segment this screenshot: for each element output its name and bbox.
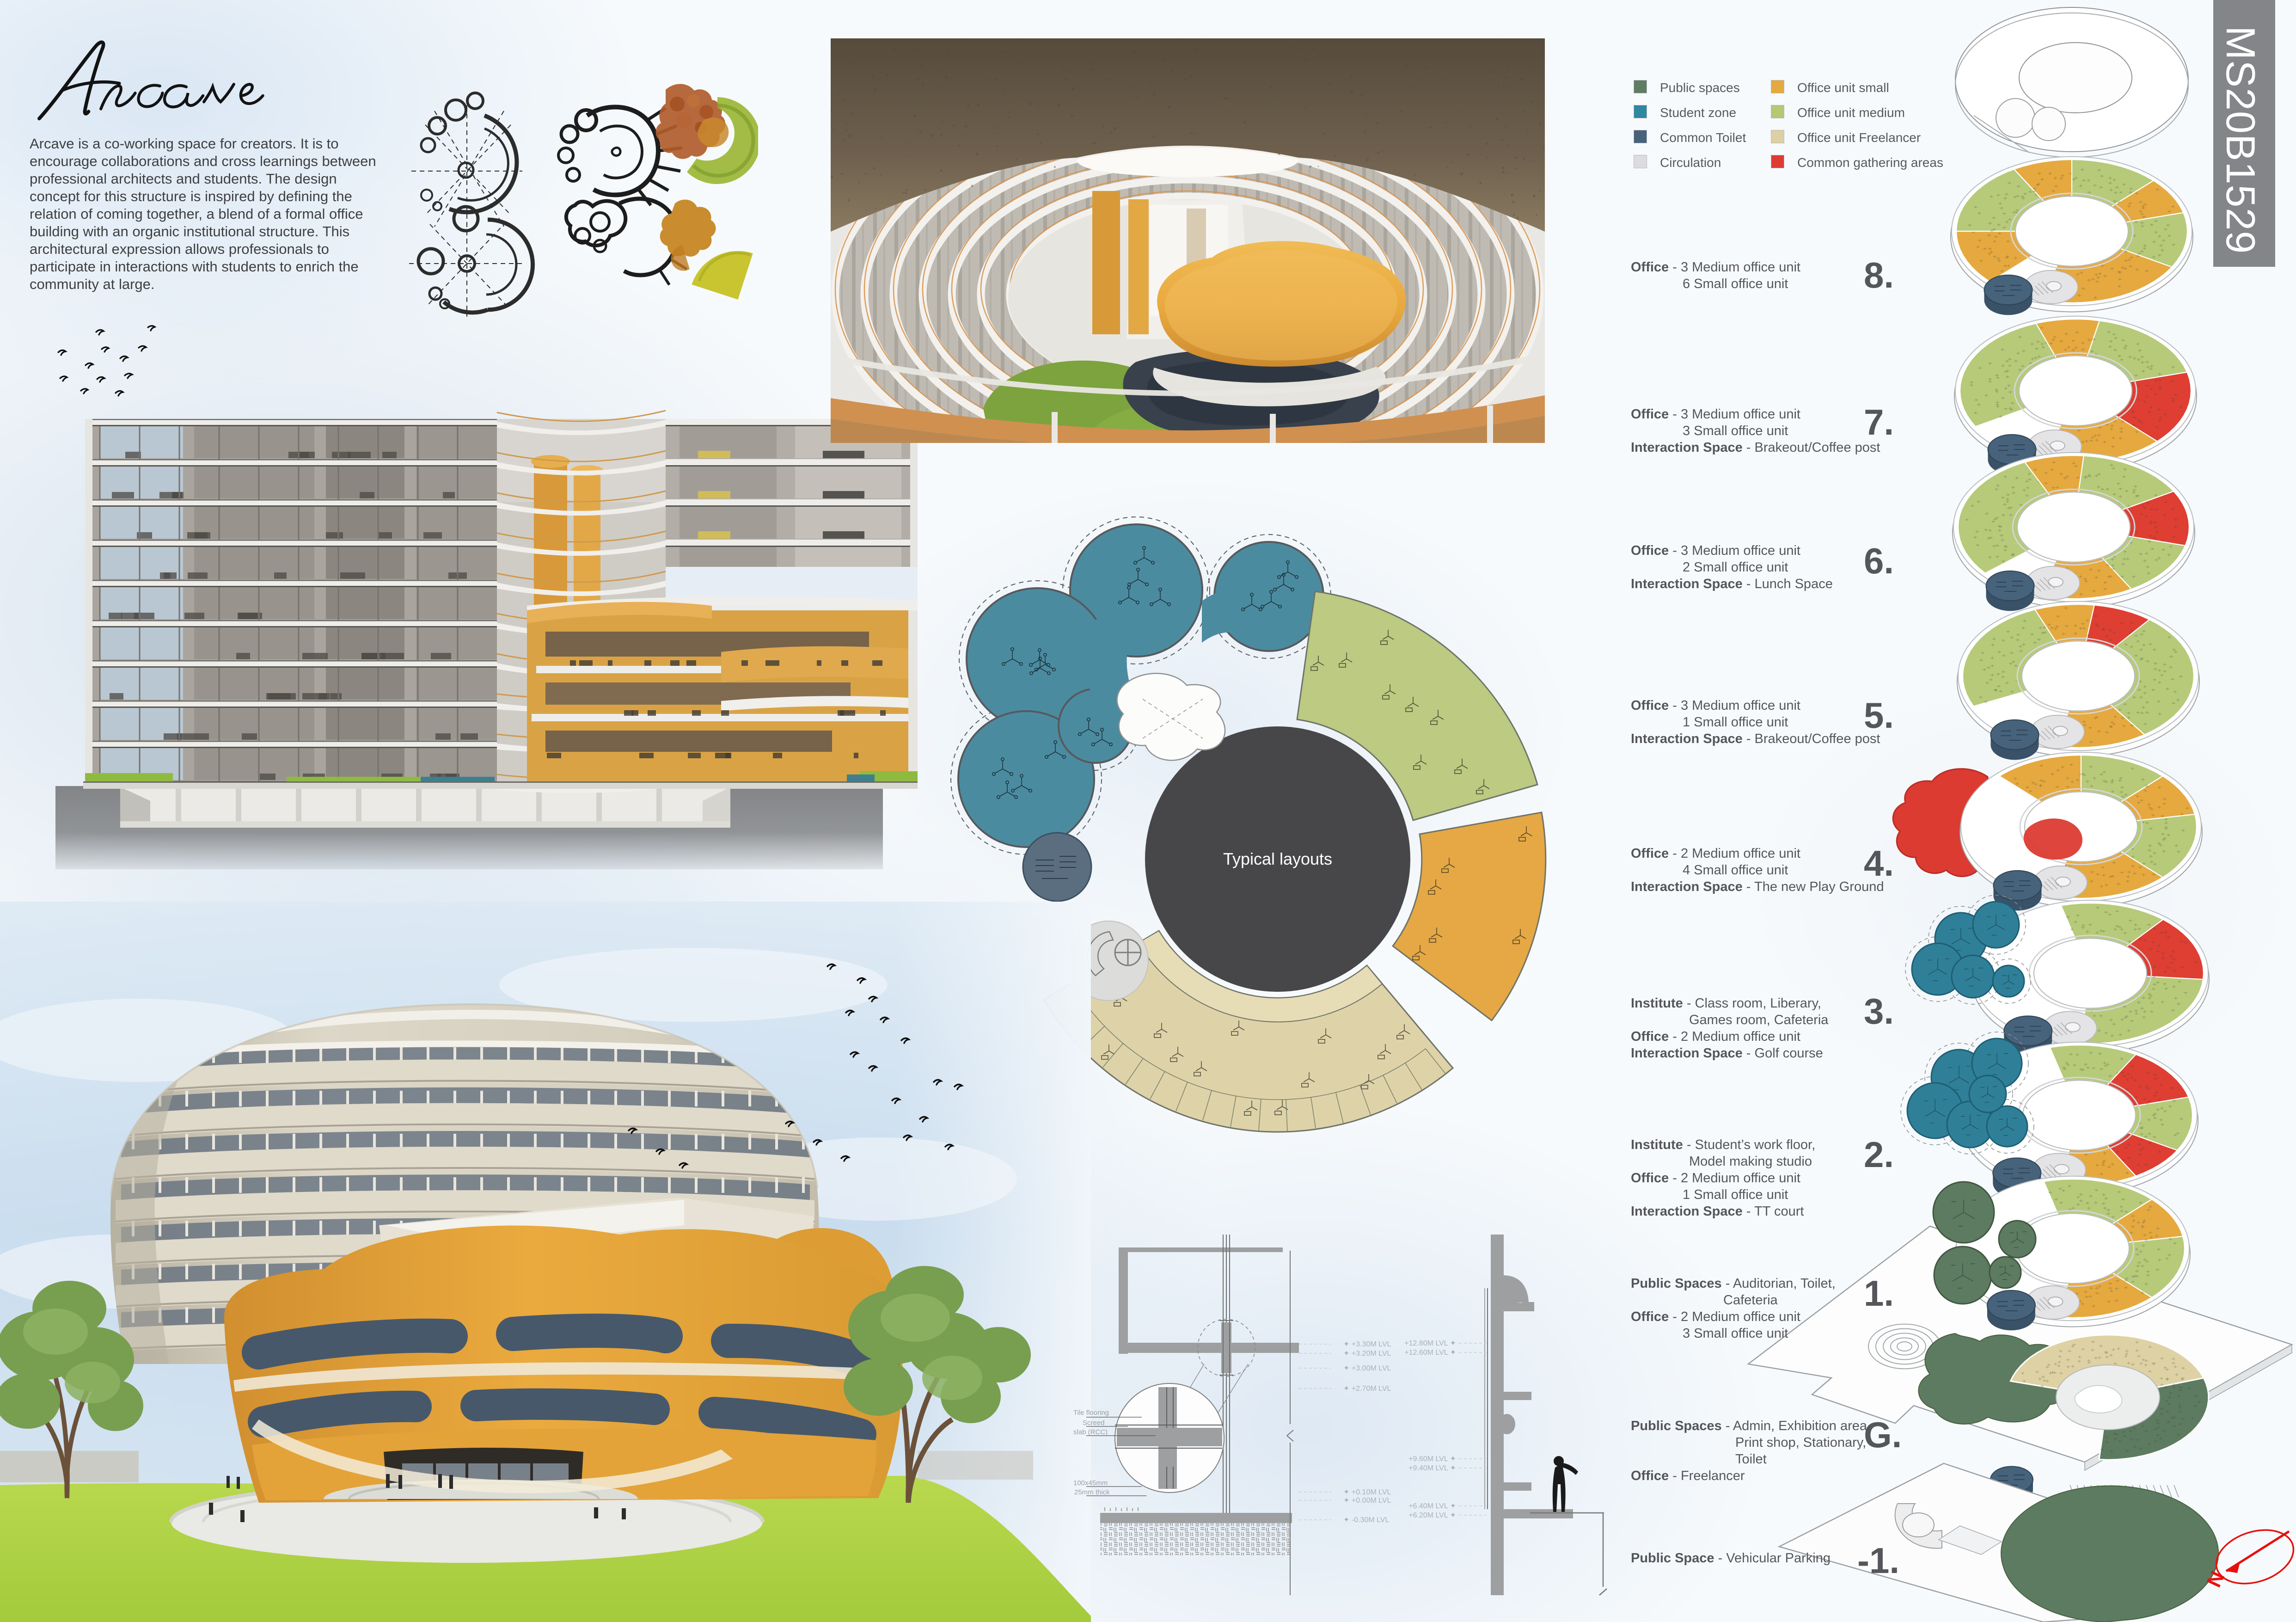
- svg-text:Typical layouts: Typical layouts: [1223, 849, 1332, 868]
- svg-text:✦ +0.00M LVL: ✦ +0.00M LVL: [1343, 1497, 1391, 1505]
- svg-text:✦ +3.20M LVL: ✦ +3.20M LVL: [1343, 1350, 1391, 1358]
- svg-text:✦ +2.70M LVL: ✦ +2.70M LVL: [1343, 1385, 1391, 1393]
- svg-text:✦ +3.00M LVL: ✦ +3.00M LVL: [1343, 1364, 1391, 1372]
- svg-text:+12.60M LVL ✦: +12.60M LVL ✦: [1404, 1349, 1456, 1357]
- svg-text:slab (RCC): slab (RCC): [1073, 1428, 1108, 1436]
- svg-text:+12.80M LVL ✦: +12.80M LVL ✦: [1404, 1339, 1456, 1347]
- svg-text:+6.40M LVL ✦: +6.40M LVL ✦: [1408, 1502, 1456, 1510]
- svg-text:100x45mm: 100x45mm: [1073, 1479, 1108, 1487]
- svg-text:+6.20M LVL ✦: +6.20M LVL ✦: [1408, 1511, 1456, 1519]
- svg-text:+9.40M LVL ✦: +9.40M LVL ✦: [1408, 1464, 1456, 1472]
- svg-text:✦ -0.30M LVL: ✦ -0.30M LVL: [1343, 1516, 1389, 1524]
- svg-text:✦ +3.30M LVL: ✦ +3.30M LVL: [1343, 1340, 1391, 1348]
- svg-text:+9.60M LVL ✦: +9.60M LVL ✦: [1408, 1455, 1456, 1463]
- svg-text:Screed: Screed: [1083, 1419, 1105, 1427]
- svg-text:Tile flooring: Tile flooring: [1073, 1409, 1109, 1417]
- svg-text:25mm thick: 25mm thick: [1074, 1488, 1110, 1496]
- svg-text:✦ +0.10M LVL: ✦ +0.10M LVL: [1343, 1488, 1391, 1496]
